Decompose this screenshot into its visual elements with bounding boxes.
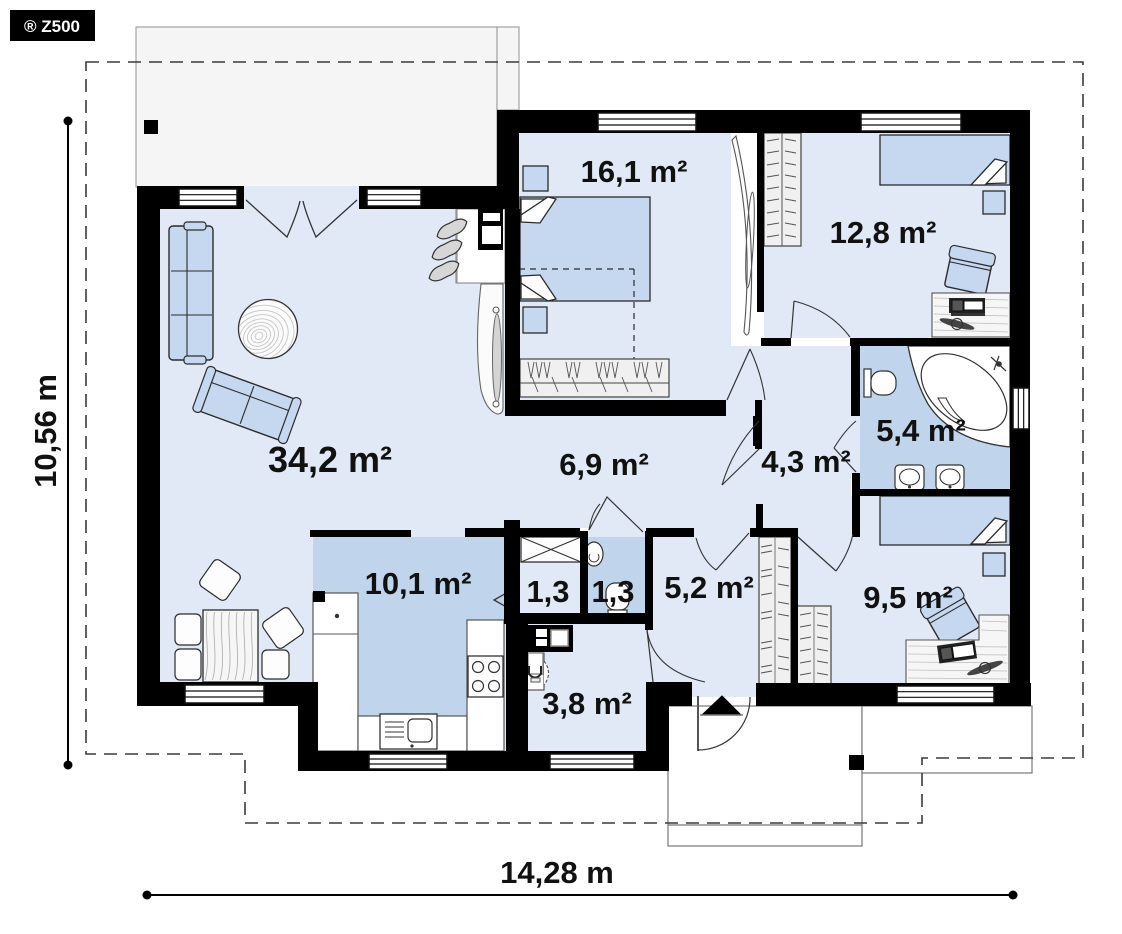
svg-text:1,3: 1,3 xyxy=(526,574,569,609)
svg-text:1,3: 1,3 xyxy=(591,574,634,609)
svg-text:5,4 m²: 5,4 m² xyxy=(876,413,966,448)
svg-text:10,1 m²: 10,1 m² xyxy=(365,566,472,601)
svg-text:10,56 m: 10,56 m xyxy=(28,374,63,488)
svg-text:4,3 m²: 4,3 m² xyxy=(761,444,851,479)
svg-text:9,5 m²: 9,5 m² xyxy=(863,580,953,615)
svg-text:12,8 m²: 12,8 m² xyxy=(830,215,937,250)
svg-text:® Z500: ® Z500 xyxy=(24,17,80,36)
svg-text:14,28 m: 14,28 m xyxy=(500,855,614,890)
svg-text:5,2 m²: 5,2 m² xyxy=(664,570,754,605)
svg-text:16,1 m²: 16,1 m² xyxy=(581,154,688,189)
svg-text:6,9 m²: 6,9 m² xyxy=(559,447,649,482)
svg-text:34,2 m²: 34,2 m² xyxy=(268,439,392,480)
svg-text:3,8 m²: 3,8 m² xyxy=(542,686,632,721)
